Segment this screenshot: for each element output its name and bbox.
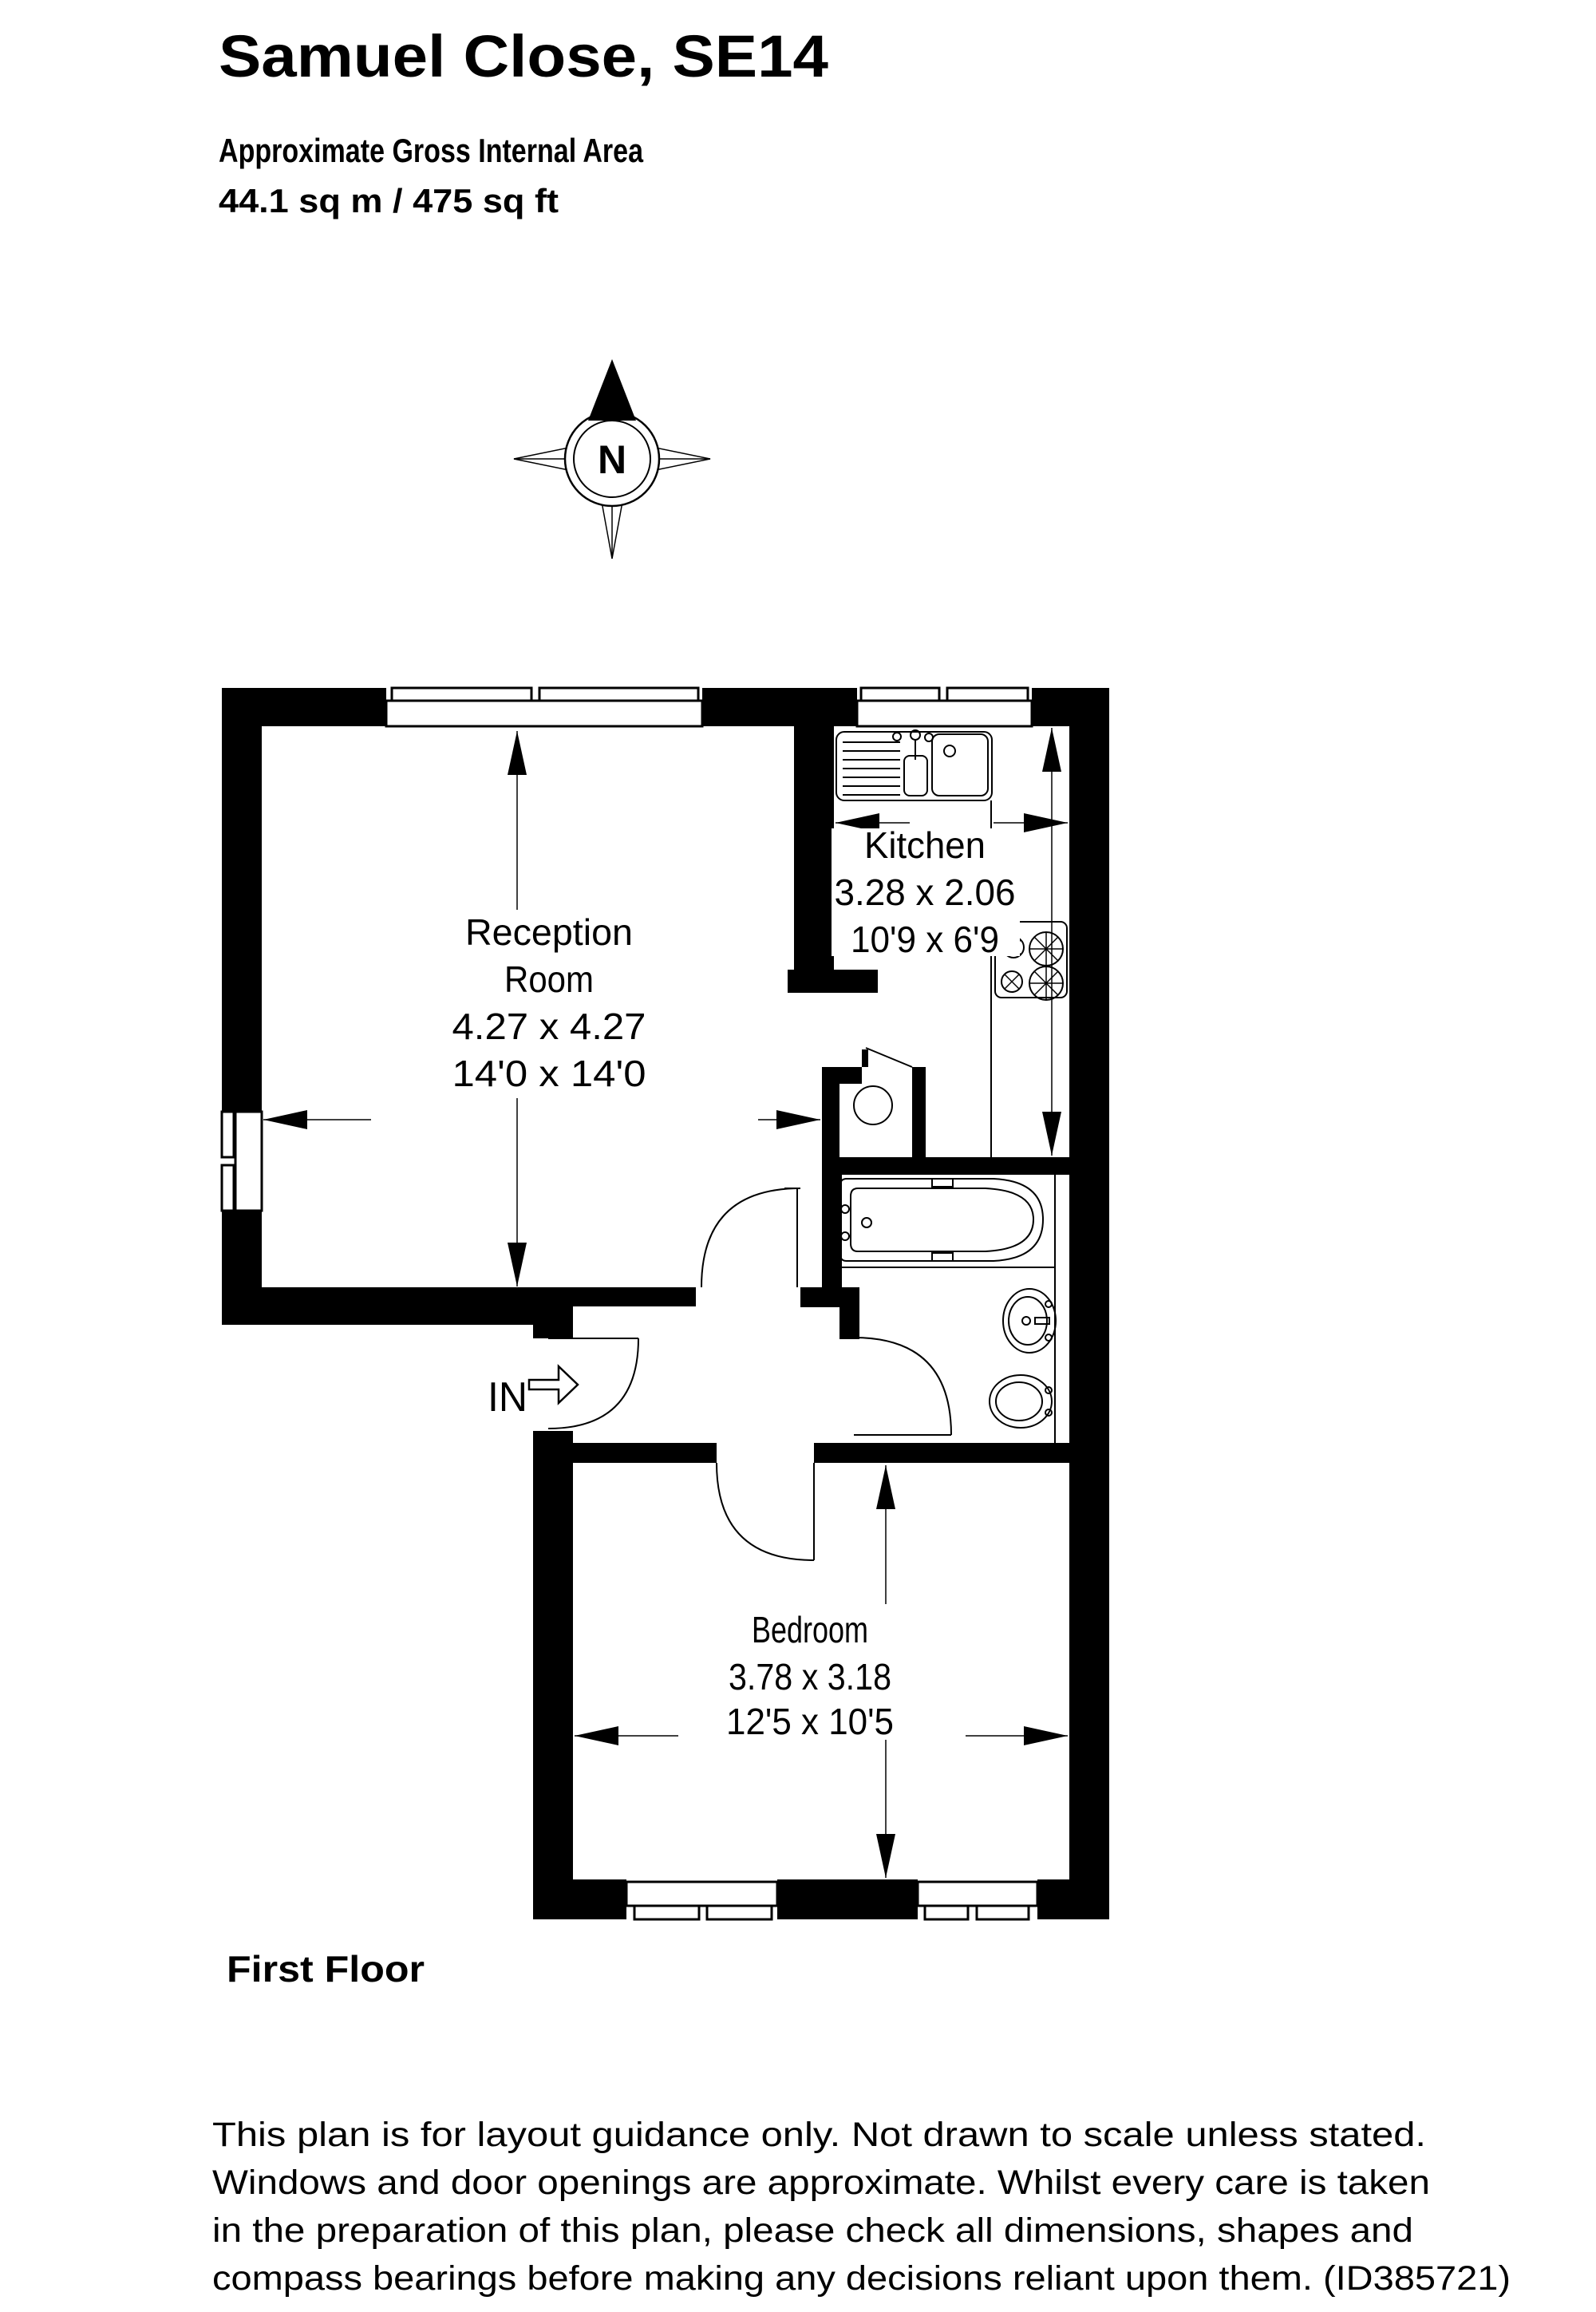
bedroom-dimensions-metric: 3.78 x 3.18 xyxy=(729,1656,891,1697)
wall-reception-south xyxy=(222,1287,573,1325)
wall-bath-left xyxy=(822,1175,842,1287)
wall-closet-top-right xyxy=(912,1067,926,1084)
wall-closet-right xyxy=(912,1084,926,1157)
reception-room-dimensions-imperial: 14'0 x 14'0 xyxy=(452,1053,646,1094)
entrance: IN xyxy=(488,1366,578,1421)
dimension-kitchen-vertical xyxy=(1042,728,1061,1156)
area-subtitle: Approximate Gross Internal Area xyxy=(219,132,644,169)
page-title: Samuel Close, SE14 xyxy=(219,23,828,89)
disclaimer-line-2: Windows and door openings are approximat… xyxy=(212,2164,1430,2202)
door-bedroom xyxy=(717,1463,814,1560)
bedroom-dimensions-imperial: 12'5 x 10'5 xyxy=(726,1701,894,1742)
wall-entrance-jamb xyxy=(533,1287,573,1338)
window-bedroom-bottom-right xyxy=(918,1879,1037,1919)
kitchen-dimensions-imperial: 10'9 x 6'9 xyxy=(851,919,999,960)
bedroom-name: Bedroom xyxy=(752,1609,868,1650)
kitchen-sink-icon xyxy=(836,730,992,800)
floorplan-drawing: Samuel Close, SE14 Approximate Gross Int… xyxy=(0,0,1596,2312)
floor-level-label: First Floor xyxy=(227,1948,425,1990)
compass-label: N xyxy=(598,437,626,482)
compass: N xyxy=(514,359,710,559)
wall-bedroom-top-left xyxy=(573,1443,717,1463)
wall-left xyxy=(222,688,262,1325)
window-bedroom-bottom-left xyxy=(626,1879,777,1919)
disclaimer: This plan is for layout guidance only. N… xyxy=(212,2116,1511,2298)
wall-kitchen-bath-divider xyxy=(822,1157,1109,1175)
window-reception-top xyxy=(386,688,702,726)
wall-reception-kitchen-divider xyxy=(794,726,834,993)
wall-bath-door-jamb xyxy=(839,1307,859,1339)
kitchen-name: Kitchen xyxy=(864,824,986,866)
bath-icon xyxy=(840,1179,1043,1261)
wall-right xyxy=(1069,688,1109,1919)
door-closet xyxy=(866,1048,912,1067)
window-kitchen-top xyxy=(857,688,1032,726)
wall-bedroom-top-right xyxy=(814,1443,1069,1463)
toilet-icon xyxy=(990,1375,1052,1428)
washbasin-icon xyxy=(1003,1289,1056,1353)
wall-hall-bath-block xyxy=(800,1287,859,1307)
door-reception xyxy=(701,1188,800,1287)
entrance-arrow-icon xyxy=(529,1366,578,1403)
dimension-reception-horizontal xyxy=(263,1110,820,1129)
area-value: 44.1 sq m / 475 sq ft xyxy=(219,182,559,219)
north-arrow-icon xyxy=(588,359,636,421)
disclaimer-line-4: compass bearings before making any decis… xyxy=(212,2259,1511,2298)
hob-burner xyxy=(1029,966,1063,1000)
door-bathroom xyxy=(854,1338,951,1435)
disclaimer-line-1: This plan is for layout guidance only. N… xyxy=(212,2116,1426,2154)
entrance-label: IN xyxy=(488,1374,527,1421)
wall-closet-top-left xyxy=(822,1067,862,1084)
floorplan-page: Samuel Close, SE14 Approximate Gross Int… xyxy=(0,0,1596,2312)
reception-room-name-line2: Room xyxy=(504,958,594,1000)
wall-closet-door-tick xyxy=(862,1049,868,1067)
disclaimer-line-3: in the preparation of this plan, please … xyxy=(212,2211,1413,2250)
reception-room-dimensions-metric: 4.27 x 4.27 xyxy=(452,1006,646,1047)
wall-reception-south-thin xyxy=(573,1287,696,1306)
hob-burner xyxy=(1029,932,1063,966)
boiler-cylinder-icon xyxy=(854,1086,892,1124)
window-reception-left xyxy=(222,1112,262,1211)
reception-room-name-line1: Reception xyxy=(465,911,633,953)
wall-bedroom-left xyxy=(533,1431,573,1919)
wall-divider-stub xyxy=(788,970,878,993)
kitchen-dimensions-metric: 3.28 x 2.06 xyxy=(835,871,1016,913)
hob-burner xyxy=(1001,971,1022,992)
